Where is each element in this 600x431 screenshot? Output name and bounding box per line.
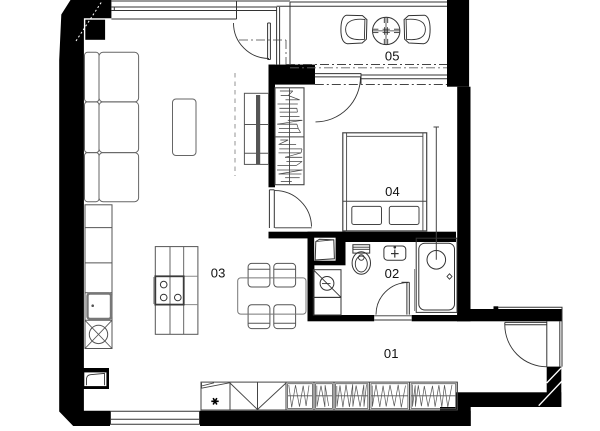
svg-text:05: 05 xyxy=(385,49,400,64)
svg-text:04: 04 xyxy=(385,184,400,199)
svg-text:02: 02 xyxy=(385,266,400,281)
svg-text:03: 03 xyxy=(211,266,226,281)
svg-text:01: 01 xyxy=(384,346,399,361)
